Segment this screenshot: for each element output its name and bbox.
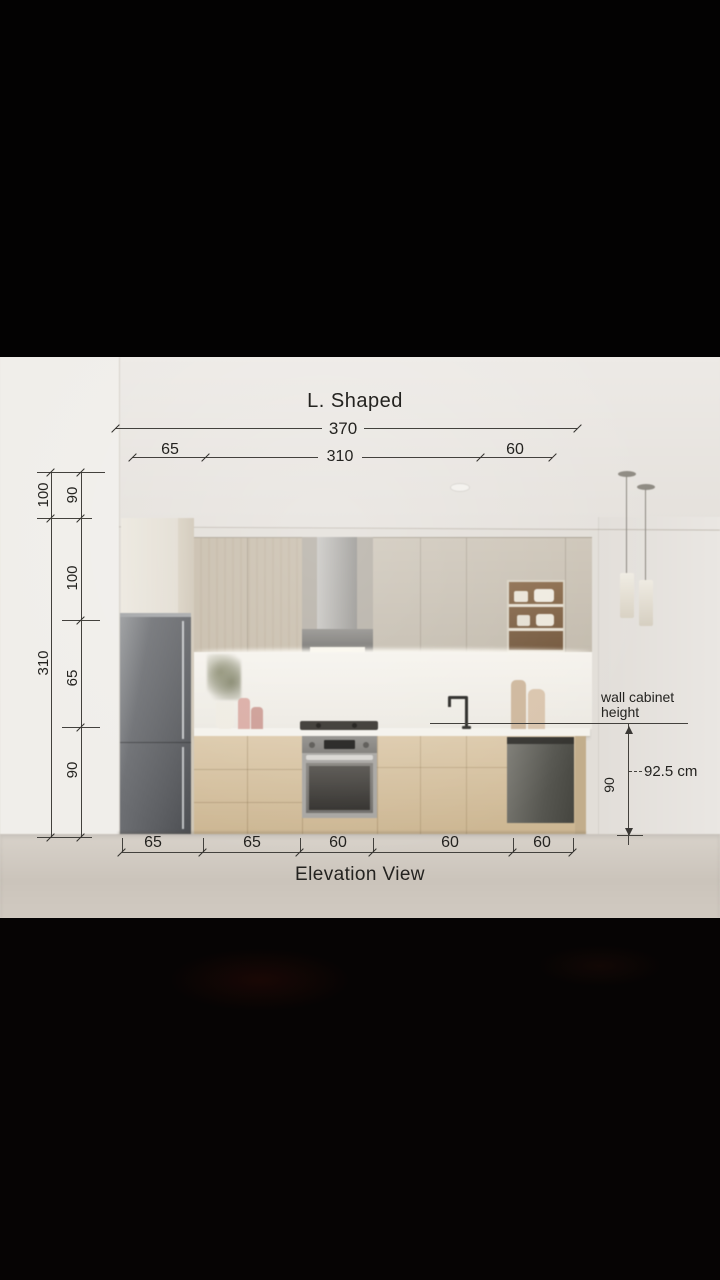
dim-label: 60 — [430, 834, 470, 852]
dimension-overlay: L. Shaped 370 65 310 60 — [0, 357, 720, 918]
dim-label: 65 — [232, 834, 272, 852]
dim-label-vertical: 90 — [601, 755, 617, 815]
arrow-up — [625, 726, 633, 734]
diagram-title: L. Shaped — [270, 390, 440, 413]
dim-label: 60 — [522, 834, 562, 852]
dim-value-cm: 92.5 cm — [644, 763, 708, 780]
dim-label: 60 — [318, 834, 358, 852]
dim-label-vertical: 90 — [64, 740, 80, 800]
dim-label: 65 — [133, 834, 173, 852]
dim-line-left-inner — [81, 472, 82, 837]
dim-label-vertical: 65 — [64, 648, 80, 708]
screen: L. Shaped 370 65 310 60 — [0, 0, 720, 1280]
leader-line-wall-cabinet-height — [430, 723, 688, 724]
diagram-caption: Elevation View — [250, 864, 470, 886]
dim-label: 310 — [318, 448, 362, 466]
annotation-line: height — [601, 705, 711, 720]
dim-label-total: 370 — [322, 419, 364, 439]
leader-dashes — [629, 771, 642, 772]
dim-label-vertical: 100 — [35, 465, 51, 525]
dim-label-vertical: 310 — [35, 633, 51, 693]
letterbox-bottom — [0, 918, 720, 1280]
dim-line-top-total — [364, 428, 577, 429]
extension-line — [617, 835, 643, 836]
dim-line-top-total — [115, 428, 322, 429]
annotation-line: wall cabinet — [601, 690, 711, 705]
annotation-wall-cabinet-height: wall cabinet height — [601, 690, 711, 720]
dim-label-vertical: 100 — [64, 548, 80, 608]
dim-label-vertical: 90 — [64, 465, 80, 525]
extension-line — [37, 837, 92, 838]
dim-line-bottom — [122, 852, 573, 853]
kitchen-elevation-photo: L. Shaped 370 65 310 60 — [0, 357, 720, 918]
dim-label: 60 — [495, 441, 535, 459]
dim-line-right-height — [628, 723, 629, 845]
dim-label: 65 — [150, 441, 190, 459]
letterbox-top — [0, 0, 720, 357]
